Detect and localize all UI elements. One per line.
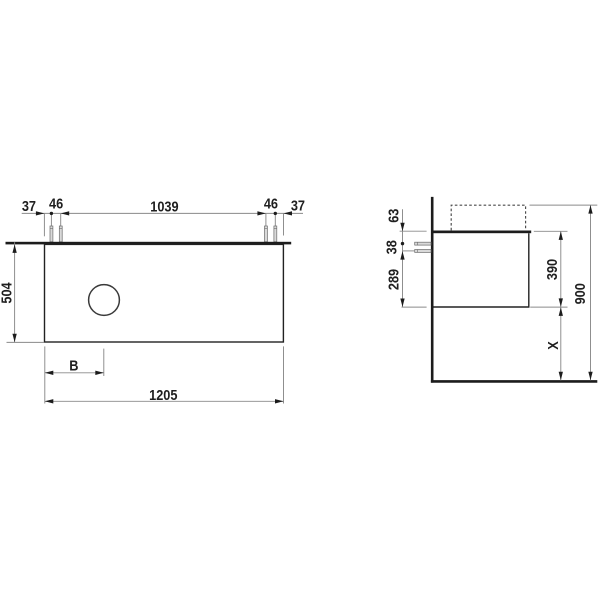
svg-text:63: 63 bbox=[384, 208, 401, 222]
svg-text:B: B bbox=[69, 356, 78, 373]
svg-text:1039: 1039 bbox=[150, 197, 179, 214]
svg-text:37: 37 bbox=[291, 196, 305, 213]
svg-text:504: 504 bbox=[0, 282, 15, 303]
svg-text:37: 37 bbox=[22, 197, 36, 214]
svg-text:46: 46 bbox=[49, 194, 63, 211]
svg-text:1205: 1205 bbox=[149, 386, 178, 403]
svg-text:289: 289 bbox=[384, 269, 401, 290]
svg-text:38: 38 bbox=[382, 240, 399, 254]
svg-text:46: 46 bbox=[264, 194, 278, 211]
svg-text:X: X bbox=[544, 341, 561, 350]
svg-text:390: 390 bbox=[543, 259, 560, 280]
svg-text:900: 900 bbox=[571, 283, 588, 304]
